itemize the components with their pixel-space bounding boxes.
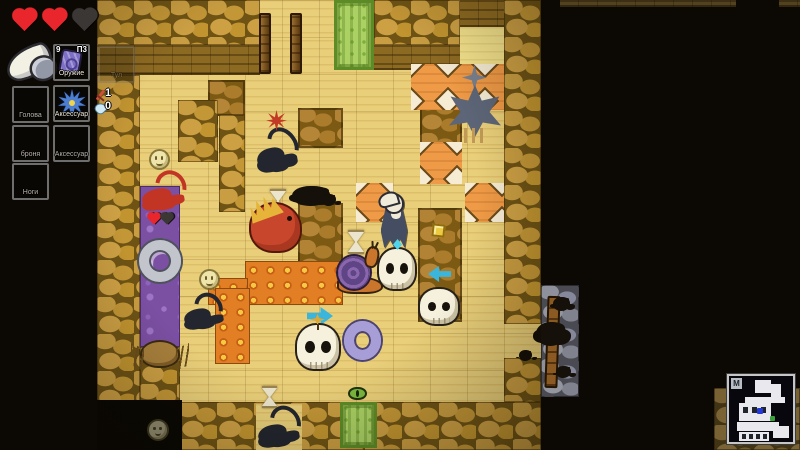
gold-item[interactable] — [431, 223, 445, 237]
heart-empty — [74, 10, 95, 31]
tile-dark — [97, 400, 182, 450]
purple-ring-item[interactable] — [344, 321, 381, 360]
tile-trap — [420, 142, 462, 184]
legs-slot-label: Ноги — [7, 189, 54, 197]
weapon-slot-label: Оружие — [48, 70, 95, 78]
tile-wallface — [779, 0, 800, 7]
minimap-player-dot — [757, 408, 763, 414]
spike-star-creature[interactable] — [449, 85, 501, 137]
eye-item[interactable] — [348, 387, 367, 400]
head-slot[interactable]: Голова — [12, 86, 49, 123]
minimap-room — [773, 426, 789, 438]
tile-wallface — [560, 0, 736, 7]
sand-dollar-creature[interactable] — [149, 421, 167, 439]
sand-dollar-creature[interactable] — [201, 271, 218, 288]
black-scorpion[interactable] — [256, 126, 300, 174]
accessory-slot-2[interactable]: Аксессуар — [53, 125, 90, 162]
red-scorpion-enemy[interactable] — [141, 170, 188, 212]
partial-slot[interactable]: Тул — [98, 46, 135, 83]
water-count: 0 — [105, 100, 111, 112]
hearts — [13, 9, 103, 37]
minimap-pip — [756, 434, 760, 439]
heart-filled — [44, 10, 65, 31]
heart-filled — [14, 10, 35, 31]
door[interactable] — [259, 13, 271, 74]
tile-walltop — [504, 0, 541, 324]
skull[interactable] — [297, 325, 339, 369]
star-twig — [310, 314, 325, 330]
minimap-pip — [763, 434, 767, 439]
sword-count: 1 — [105, 87, 111, 99]
tile-green — [334, 0, 374, 70]
head-slot-label: Голова — [7, 112, 54, 120]
tile-walltop — [97, 0, 260, 45]
accessory-slot-2-label: Аксессуар — [48, 151, 95, 159]
red-lizard-creature[interactable] — [251, 204, 300, 251]
partial-slot-label: Тул — [93, 72, 140, 80]
minimap: M — [727, 374, 795, 444]
weapon-count: 9 — [56, 45, 60, 54]
tile-green — [340, 402, 377, 448]
tile-walltop — [374, 0, 460, 45]
skull[interactable] — [379, 249, 415, 289]
game-screen: 9 П3 Оружие Тул Голова Аксессуар 1 0 бро… — [0, 0, 800, 450]
tile-walltop — [219, 115, 245, 212]
black-scorpion[interactable] — [257, 405, 302, 448]
tile-fire — [245, 261, 343, 305]
tile-walltop — [504, 358, 541, 402]
minimap-pip — [749, 434, 753, 439]
minimap-room — [755, 380, 771, 393]
black-scorpion[interactable] — [183, 292, 225, 330]
tile-sandlight — [460, 27, 504, 67]
weapon-slot[interactable]: 9 П3 Оружие — [53, 44, 90, 81]
sand-dollar-creature[interactable] — [151, 151, 168, 168]
tile-trap — [465, 183, 504, 222]
tile-wallface — [460, 0, 504, 27]
armor-slot[interactable]: броня — [12, 125, 49, 162]
tile-walltop — [178, 100, 218, 162]
accessory-slot-1-label: Аксессуар — [48, 111, 95, 119]
weapon-ammo: П3 — [77, 45, 87, 54]
accessory-slot-1[interactable]: Аксессуар — [53, 85, 90, 122]
spider[interactable] — [142, 342, 178, 366]
armor-slot-label: броня — [7, 151, 54, 159]
hourglass-item[interactable] — [348, 230, 364, 254]
door[interactable] — [290, 13, 302, 74]
legs-slot[interactable]: Ноги — [12, 163, 49, 200]
minimap-pip — [743, 407, 748, 413]
minimap-exit-dot — [770, 416, 775, 421]
tile-dirt — [298, 108, 343, 148]
minimap-badge: M — [731, 378, 742, 389]
minimap-pip — [742, 434, 746, 439]
gray-ring-item[interactable] — [139, 240, 181, 282]
skull[interactable] — [420, 289, 458, 324]
